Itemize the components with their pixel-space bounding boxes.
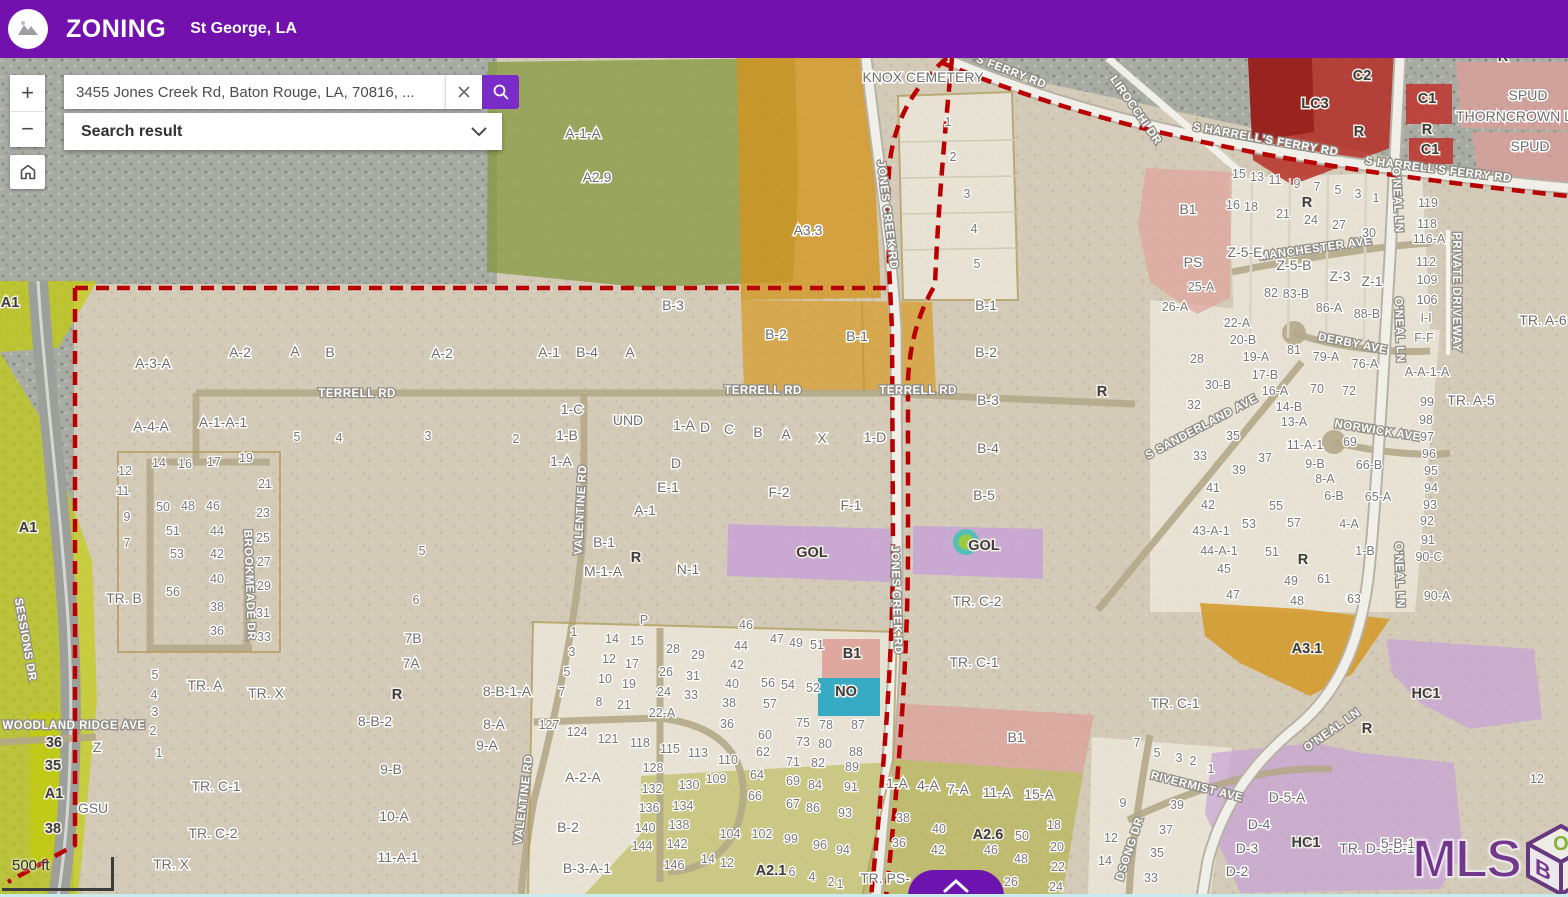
map-label: 14 bbox=[152, 456, 166, 470]
map-label: 51 bbox=[1265, 545, 1279, 559]
map-label: 17 bbox=[625, 657, 639, 671]
map-label: 7A bbox=[402, 655, 420, 671]
map-label: D bbox=[700, 419, 710, 435]
map-label: 33 bbox=[684, 688, 698, 702]
map-label: HC1 bbox=[1291, 835, 1320, 851]
map-label: 42 bbox=[730, 658, 744, 672]
map-label: A1 bbox=[1, 295, 20, 311]
map-label: 90-A bbox=[1424, 589, 1451, 603]
map-label: 118 bbox=[1417, 217, 1437, 231]
map-label: R bbox=[1097, 384, 1108, 400]
map-label: 19-A bbox=[1243, 350, 1270, 364]
map-label: 98 bbox=[1419, 413, 1433, 427]
map-label: 53 bbox=[1242, 517, 1256, 531]
map-label: 56 bbox=[166, 585, 180, 599]
map-label: N-1 bbox=[677, 561, 700, 577]
mlsbox-cube-icon: O B X bbox=[1522, 822, 1568, 896]
map-label: 40 bbox=[210, 572, 224, 586]
map-label: C bbox=[724, 421, 734, 437]
map-label: 8-B-2 bbox=[358, 713, 392, 729]
map-label: B1 bbox=[1007, 729, 1024, 745]
map-label: 27 bbox=[1332, 218, 1346, 232]
map-label: B bbox=[325, 344, 334, 360]
map-label: 36 bbox=[46, 735, 62, 751]
map-label: 5 bbox=[152, 668, 159, 682]
map-label: 26 bbox=[659, 665, 673, 679]
map-label: Z-1 bbox=[1362, 273, 1383, 289]
map-label: 86 bbox=[806, 801, 820, 815]
map-label: 128 bbox=[643, 761, 664, 775]
map-label: 22-A bbox=[649, 706, 676, 720]
map-label: SPUD bbox=[1509, 87, 1548, 103]
app-logo bbox=[8, 9, 48, 49]
map-label: 38 bbox=[896, 811, 910, 825]
map-label: 14-B bbox=[1276, 400, 1302, 414]
map-label: 9 bbox=[1294, 177, 1301, 191]
map-label: 1 bbox=[837, 877, 844, 891]
map-label: 84 bbox=[808, 778, 822, 792]
map-label: 49 bbox=[789, 636, 803, 650]
app-title: ZONING bbox=[66, 15, 166, 44]
map-label: 62 bbox=[756, 745, 770, 759]
map-label: 66-B bbox=[1356, 458, 1382, 472]
map-label: P bbox=[640, 613, 648, 627]
map-label: 48 bbox=[1290, 594, 1304, 608]
map-label: X bbox=[817, 430, 827, 446]
map-label: Z-3 bbox=[1330, 268, 1351, 284]
map-label: 12 bbox=[720, 856, 734, 870]
map-label: 109 bbox=[706, 772, 727, 786]
map-label: 64 bbox=[750, 768, 764, 782]
map-label: 8-A bbox=[483, 716, 505, 732]
app-header: ZONING St George, LA bbox=[0, 0, 1568, 58]
map-label: KNOX CEMETERY bbox=[862, 69, 984, 85]
map-label: 92 bbox=[1420, 514, 1434, 528]
map-label: 48 bbox=[1014, 852, 1028, 866]
map-label: 5 bbox=[564, 665, 571, 679]
search-button[interactable] bbox=[482, 75, 519, 109]
map-label: 7B bbox=[404, 630, 421, 646]
map-label: 19 bbox=[622, 677, 636, 691]
app-subtitle: St George, LA bbox=[190, 20, 297, 38]
map-label: 44 bbox=[210, 524, 224, 538]
map-label: TR. C-2 bbox=[189, 825, 238, 841]
map-label: 146 bbox=[664, 858, 685, 872]
map-label: 13-A bbox=[1281, 415, 1308, 429]
map-label: TR. A-6 bbox=[1519, 312, 1567, 328]
map-label: 110 bbox=[718, 753, 738, 767]
map-label: 116-A bbox=[1413, 232, 1446, 246]
map-label: 61 bbox=[1317, 572, 1331, 586]
map-label: 115 bbox=[660, 742, 680, 756]
chevron-down-icon bbox=[470, 126, 488, 138]
map-label: 94 bbox=[1424, 481, 1438, 495]
map-label: 35 bbox=[45, 758, 61, 774]
map-label: TR. A-5 bbox=[1447, 392, 1495, 408]
map-label: 109 bbox=[1417, 273, 1438, 287]
map-label: 10-A bbox=[379, 808, 409, 824]
map-label: 2 bbox=[950, 150, 957, 164]
map-label: A-2-A bbox=[565, 769, 601, 785]
map-label: 73 bbox=[796, 735, 810, 749]
map-label: 132 bbox=[642, 782, 663, 796]
map-label: B-4 bbox=[576, 344, 598, 360]
map-label: 46 bbox=[739, 618, 753, 632]
map-label: 66 bbox=[748, 789, 762, 803]
map-label: 1 bbox=[1373, 191, 1380, 205]
map-label: B-2 bbox=[765, 326, 787, 342]
map-label: B1 bbox=[1179, 201, 1196, 217]
map-label: A bbox=[625, 344, 635, 360]
map-label: D bbox=[671, 455, 681, 471]
map-label: THORNCROWN L bbox=[1456, 108, 1568, 124]
search-input[interactable] bbox=[64, 75, 446, 109]
map-label: 39 bbox=[1170, 798, 1184, 812]
map-label: 93 bbox=[838, 806, 852, 820]
map-label: NO bbox=[835, 684, 857, 700]
home-icon bbox=[18, 162, 38, 182]
map-label: 11 bbox=[1269, 173, 1282, 187]
map-label: 11-A-1 bbox=[1287, 438, 1324, 452]
map-label: 124 bbox=[567, 725, 588, 739]
map-label: 4 bbox=[336, 431, 343, 445]
map-label: 121 bbox=[598, 732, 619, 746]
map-label: 56 bbox=[761, 676, 775, 690]
map-label: 9-B bbox=[1305, 457, 1324, 471]
map-label: 44 bbox=[734, 639, 748, 653]
map-label: B-5 bbox=[973, 487, 995, 503]
map-label: 78 bbox=[819, 718, 833, 732]
map-label: 3 bbox=[152, 705, 159, 719]
map-label: 9-B bbox=[380, 761, 402, 777]
map-label: 90-C bbox=[1415, 550, 1442, 564]
map-label: A-1-A-1 bbox=[199, 414, 247, 430]
map-label: 65-A bbox=[1365, 490, 1392, 504]
map-label: 38 bbox=[45, 821, 61, 837]
map-label: B bbox=[753, 424, 762, 440]
map-label: PS bbox=[1184, 254, 1203, 270]
map-label: 30-B bbox=[1205, 378, 1231, 392]
map-label: 25 bbox=[256, 531, 270, 545]
map-label: B-1 bbox=[975, 297, 997, 313]
map-label: TR. C-1 bbox=[1151, 695, 1200, 711]
map-label: 5 bbox=[294, 430, 301, 444]
map-label: 16 bbox=[1226, 198, 1240, 212]
map-label: 63 bbox=[1347, 592, 1361, 606]
map-label: 140 bbox=[635, 821, 656, 835]
map-label: A bbox=[290, 343, 300, 359]
map-label: 1-B bbox=[556, 427, 578, 443]
map-label: 33 bbox=[1144, 871, 1158, 885]
map-label: 112 bbox=[1416, 255, 1436, 269]
map-label: 18 bbox=[1244, 200, 1258, 214]
map-label: 47 bbox=[1226, 588, 1240, 602]
map-label: 7 bbox=[559, 685, 566, 699]
map-label: 36 bbox=[720, 717, 734, 731]
map-label: 6 bbox=[413, 593, 420, 607]
map-label: 17-B bbox=[1252, 368, 1278, 382]
map-label: GSU bbox=[78, 800, 108, 816]
map-label: 38 bbox=[722, 696, 736, 710]
map-label: 60 bbox=[758, 728, 772, 742]
map-label: B-1 bbox=[593, 534, 615, 550]
map-label: 69 bbox=[786, 774, 800, 788]
map-label: 118 bbox=[630, 736, 650, 750]
map-label: 102 bbox=[752, 827, 773, 841]
map-label: B-3-A-1 bbox=[563, 860, 611, 876]
map-label: 5 bbox=[974, 257, 981, 271]
map-label: R bbox=[1302, 195, 1313, 211]
map-label: Z bbox=[93, 739, 102, 755]
search-bar bbox=[64, 75, 519, 109]
map-label: B-3 bbox=[662, 297, 684, 313]
zoom-out-button[interactable]: − bbox=[10, 112, 45, 148]
map-label: 24 bbox=[1304, 213, 1318, 227]
map-label: B-1 bbox=[846, 328, 868, 344]
map-label: R bbox=[1298, 552, 1309, 568]
map-label: 7 bbox=[1134, 736, 1141, 750]
map-label: 31 bbox=[686, 669, 700, 683]
map-label: A3.3 bbox=[794, 222, 823, 238]
map-label: C2 bbox=[1353, 68, 1372, 84]
map-label: TERRELL RD bbox=[318, 388, 396, 400]
map-label: TR. A bbox=[187, 677, 223, 693]
map-label: 1 bbox=[571, 625, 578, 639]
map-label: B-2 bbox=[557, 819, 579, 835]
map-label: 35 bbox=[1150, 846, 1164, 860]
map-label: 42 bbox=[931, 843, 945, 857]
map-label: 19 bbox=[239, 451, 253, 465]
map-label: 13 bbox=[1250, 170, 1264, 184]
map-label: GOL bbox=[968, 538, 1000, 554]
map-label: 4-A bbox=[917, 777, 939, 793]
map-label: 136 bbox=[639, 801, 660, 815]
map-label: 22-A bbox=[1224, 316, 1251, 330]
map-label: 87 bbox=[851, 718, 865, 732]
map-label: 6-B bbox=[1324, 489, 1343, 503]
map-label: 45 bbox=[1217, 562, 1231, 576]
map-label: A-4-A bbox=[133, 418, 169, 434]
map-label: 42 bbox=[210, 547, 224, 561]
map-label: 81 bbox=[1287, 343, 1301, 357]
map-label: E-1 bbox=[657, 479, 679, 495]
map-label: TR. C-1 bbox=[192, 778, 241, 794]
map-label: 97 bbox=[1420, 430, 1434, 444]
map-label: R bbox=[1422, 122, 1433, 138]
map-label: A-1 bbox=[538, 344, 560, 360]
map-label: TR. C-1 bbox=[950, 654, 999, 670]
map-label: 71 bbox=[786, 755, 800, 769]
search-icon bbox=[492, 83, 510, 101]
map-label: 99 bbox=[784, 832, 798, 846]
map-label: 14 bbox=[701, 852, 715, 866]
map-label: 5 bbox=[1335, 183, 1342, 197]
map-label: B-2 bbox=[975, 344, 997, 360]
map-label: 36 bbox=[210, 624, 224, 638]
map-label: 49 bbox=[1284, 574, 1298, 588]
map-label: 21 bbox=[258, 477, 272, 491]
map-label: 80 bbox=[818, 737, 832, 751]
map-label: 96 bbox=[1422, 447, 1436, 461]
map-label: 50 bbox=[1015, 829, 1029, 843]
map-label: F-1 bbox=[841, 497, 862, 513]
map-label: 4 bbox=[971, 222, 978, 236]
close-icon bbox=[456, 84, 472, 100]
clear-search-button[interactable] bbox=[446, 75, 482, 109]
map-label: A2.6 bbox=[973, 827, 1004, 843]
map-label: 3 bbox=[1355, 187, 1362, 201]
map-label: 83-B bbox=[1283, 287, 1309, 301]
map-label: 144 bbox=[632, 839, 653, 853]
map-label: 25-A bbox=[1188, 280, 1215, 294]
map-label: TR. C-2 bbox=[953, 593, 1002, 609]
map-label: 40 bbox=[725, 677, 739, 691]
map-label: 37 bbox=[1159, 823, 1173, 837]
map-label: F-F bbox=[1414, 331, 1434, 345]
map-label: 95 bbox=[1424, 464, 1438, 478]
map-label: 26-A bbox=[1162, 300, 1189, 314]
map-label: A-2 bbox=[229, 344, 251, 360]
map-label: 16 bbox=[178, 457, 192, 471]
map-label: 9-A bbox=[476, 737, 498, 753]
map-label: I-I bbox=[1420, 311, 1431, 325]
map-label: 138 bbox=[669, 818, 690, 832]
map-label: 55 bbox=[1269, 499, 1283, 513]
map-label: 51 bbox=[810, 638, 824, 652]
culdesac-derby bbox=[1282, 321, 1306, 345]
map-label: 18 bbox=[1047, 818, 1061, 832]
map-label: 1-C bbox=[561, 401, 584, 417]
map-label: TR. X bbox=[153, 856, 189, 872]
map-label: A-2 bbox=[431, 345, 453, 361]
map-label: 8-B-1-A bbox=[483, 683, 532, 699]
map-label: 46 bbox=[984, 843, 998, 857]
map-label: 47 bbox=[770, 632, 784, 646]
map-label: R bbox=[392, 687, 403, 703]
map-label: 11-A-1 bbox=[378, 849, 419, 865]
search-result-dropdown[interactable]: Search result bbox=[64, 113, 502, 150]
map-label: 12 bbox=[1530, 772, 1544, 786]
map-label: 29 bbox=[691, 648, 705, 662]
map-label: 5 bbox=[419, 544, 426, 558]
map-label: 8-A bbox=[1315, 472, 1335, 486]
map-label: 10 bbox=[598, 672, 612, 686]
map-label: A-A-1-A bbox=[1405, 365, 1450, 379]
map-label: 4 bbox=[151, 688, 158, 702]
map-label: A1 bbox=[45, 786, 64, 802]
map-label: 24 bbox=[657, 685, 671, 699]
map-label: GOL bbox=[796, 545, 828, 561]
map-label: 51 bbox=[166, 524, 180, 538]
map-label: 1-D bbox=[864, 429, 887, 445]
map-label: 12 bbox=[118, 464, 132, 478]
map-label: TERRELL RD bbox=[879, 385, 957, 397]
map-label: 1-A bbox=[673, 417, 695, 433]
map-label: HC1 bbox=[1411, 686, 1440, 702]
zoom-in-button[interactable]: + bbox=[10, 75, 45, 112]
map-label: 1 bbox=[156, 746, 163, 760]
map-label: 93 bbox=[1423, 498, 1437, 512]
map-label: 79-A bbox=[1313, 350, 1340, 364]
chevron-up-icon bbox=[941, 878, 971, 894]
map-label: 5 bbox=[1154, 746, 1161, 760]
map-label: D-3 bbox=[1236, 840, 1259, 856]
map-label: 89 bbox=[845, 760, 859, 774]
map-label: 76-A bbox=[1352, 357, 1379, 371]
map-label: 86-A bbox=[1316, 301, 1343, 315]
map-label: TR. X bbox=[248, 685, 284, 701]
map-label: 31 bbox=[256, 606, 270, 620]
map-label: 3 bbox=[964, 187, 971, 201]
map-label: B-3 bbox=[977, 392, 999, 408]
map-label: Z-5-B bbox=[1277, 257, 1312, 273]
map-label: 40 bbox=[932, 822, 946, 836]
map-label: 82 bbox=[1264, 286, 1278, 300]
map-label: 2 bbox=[513, 432, 520, 446]
map-label: 3 bbox=[1176, 751, 1183, 765]
map-label: 42 bbox=[1201, 498, 1215, 512]
map-label: 54 bbox=[781, 678, 795, 692]
map-label: 14 bbox=[1098, 854, 1112, 868]
map-label: 1-B bbox=[1355, 544, 1374, 558]
map-label: 38 bbox=[210, 600, 224, 614]
map-label: 104 bbox=[720, 827, 741, 841]
map-label: 7 bbox=[124, 536, 131, 550]
map-label: 23 bbox=[256, 506, 270, 520]
map-label: 106 bbox=[1417, 293, 1438, 307]
map-label: 37 bbox=[1258, 451, 1272, 465]
zone-a33 bbox=[737, 58, 881, 300]
map-label: 21 bbox=[1276, 207, 1290, 221]
map-label: 3 bbox=[425, 429, 432, 443]
map-label: A2.9 bbox=[583, 169, 612, 185]
map-label: 2 bbox=[150, 724, 157, 738]
map-label: 57 bbox=[763, 697, 777, 711]
map-label: 99 bbox=[1420, 395, 1434, 409]
mls-watermark-text: MLS bbox=[1412, 828, 1520, 890]
expand-panel-button[interactable] bbox=[908, 870, 1004, 897]
map-label: 15 bbox=[1232, 167, 1246, 181]
map-label: O'NEAL LN bbox=[1392, 297, 1406, 363]
map-label: 52 bbox=[806, 681, 820, 695]
map-label: 35 bbox=[1226, 429, 1240, 443]
map-label: B1 bbox=[843, 646, 862, 662]
map-label: 48 bbox=[181, 499, 195, 513]
map-label: 130 bbox=[679, 778, 700, 792]
map-label: 16-A bbox=[1262, 384, 1289, 398]
map-label: 46 bbox=[206, 499, 220, 513]
home-button[interactable] bbox=[10, 155, 45, 189]
map-label: 6 bbox=[789, 865, 796, 879]
map-label: 44-A-1 bbox=[1200, 544, 1238, 558]
map-label: 30 bbox=[1362, 226, 1376, 240]
map-label: 88-B bbox=[1354, 307, 1380, 321]
map-label: 1 bbox=[945, 115, 952, 129]
map-label: 4 bbox=[809, 870, 816, 884]
map-label: 75 bbox=[796, 716, 810, 730]
map-label: 127 bbox=[539, 718, 560, 732]
map-label: 21 bbox=[617, 698, 631, 712]
map-label: A3.1 bbox=[1292, 641, 1323, 657]
map-label: 36 bbox=[892, 836, 906, 850]
map-label: B-4 bbox=[977, 440, 999, 456]
map-label: 39 bbox=[1232, 463, 1246, 477]
map-label: 20 bbox=[1050, 840, 1064, 854]
map-label: 2 bbox=[1190, 754, 1197, 768]
map-label: 22 bbox=[1051, 860, 1065, 874]
map-label: 20-B bbox=[1230, 333, 1256, 347]
scale-bar: 500 ft bbox=[2, 857, 114, 891]
